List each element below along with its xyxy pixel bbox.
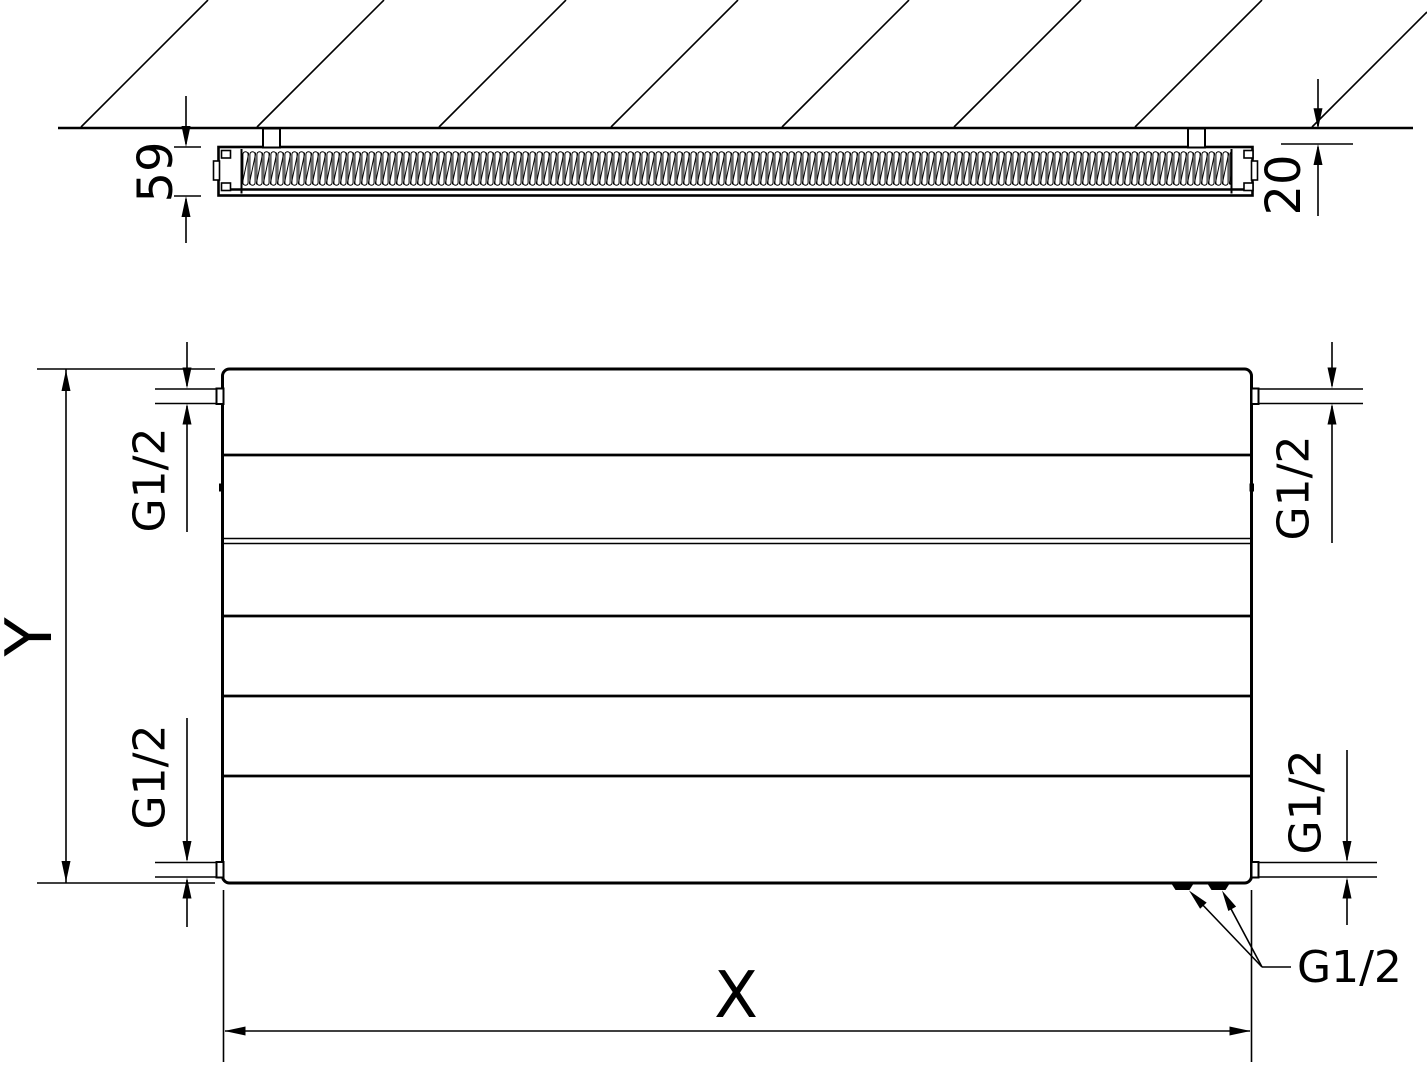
conn-label-bottom-center: G1/2 xyxy=(1297,942,1402,993)
radiator-dimension-drawing: 59 20 xyxy=(0,0,1427,1067)
wall-hatching xyxy=(81,0,1427,127)
dim-arrow-down xyxy=(62,861,71,882)
side-weld-nub-left xyxy=(219,484,224,492)
dimension-height-y: Y xyxy=(0,369,215,883)
wall-gap-dim-label: 20 xyxy=(1256,154,1312,215)
bottom-connection-nub xyxy=(1172,885,1193,891)
hatch-line xyxy=(257,0,384,127)
leader-arrow xyxy=(1222,891,1236,912)
width-dim-label: X xyxy=(714,959,758,1033)
dim-arrow-right xyxy=(1230,1027,1251,1036)
connection-stub-bottom-left xyxy=(217,862,224,878)
callout-bottom-connections: G1/2 xyxy=(1189,891,1402,994)
dimension-width-x: X xyxy=(224,890,1252,1062)
hatch-line xyxy=(611,0,738,127)
dimension-conn-top-right: G1/2 xyxy=(1269,342,1337,543)
connection-stub-top-right xyxy=(1252,389,1259,405)
conn-label-top-left: G1/2 xyxy=(125,428,176,533)
connection-stub-bottom-right xyxy=(1252,862,1259,878)
wall-bracket-left xyxy=(263,129,280,148)
depth-dim-label: 59 xyxy=(128,141,184,202)
dim-arrow-up xyxy=(1314,144,1323,165)
left-cap-tab xyxy=(222,183,231,191)
dimension-conn-bottom-right: G1/2 xyxy=(1281,750,1352,925)
hatch-line xyxy=(954,0,1081,127)
radiator-side-view xyxy=(214,129,1258,196)
conn-label-bottom-right: G1/2 xyxy=(1281,750,1332,855)
side-weld-nub-right xyxy=(1250,484,1255,492)
left-cap-clip xyxy=(214,161,220,180)
right-cap-tab xyxy=(1244,151,1253,159)
dimension-conn-bottom-left: G1/2 xyxy=(125,718,192,927)
dim-arrow-up xyxy=(62,370,71,391)
hatch-line xyxy=(81,0,208,127)
conn-label-top-right: G1/2 xyxy=(1269,436,1320,541)
bottom-connection-nub xyxy=(1208,885,1229,891)
dimension-conn-top-left: G1/2 xyxy=(125,342,192,532)
dimension-depth-59: 59 xyxy=(128,96,201,243)
left-cap-tab xyxy=(222,151,231,159)
dim-arrow-left xyxy=(225,1027,246,1036)
connection-stub-top-left xyxy=(217,389,224,405)
radiator-front-view xyxy=(155,369,1377,890)
hatch-line xyxy=(1312,12,1427,127)
conn-label-bottom-left: G1/2 xyxy=(125,725,176,830)
hatch-line xyxy=(439,0,566,127)
height-dim-label: Y xyxy=(0,617,67,658)
hatch-line xyxy=(782,0,909,127)
right-cap-tab xyxy=(1244,183,1253,191)
radiator-panel xyxy=(223,369,1252,883)
convector-fins xyxy=(242,151,1232,186)
wall-bracket-right xyxy=(1188,129,1205,148)
hatch-line xyxy=(1135,0,1262,127)
